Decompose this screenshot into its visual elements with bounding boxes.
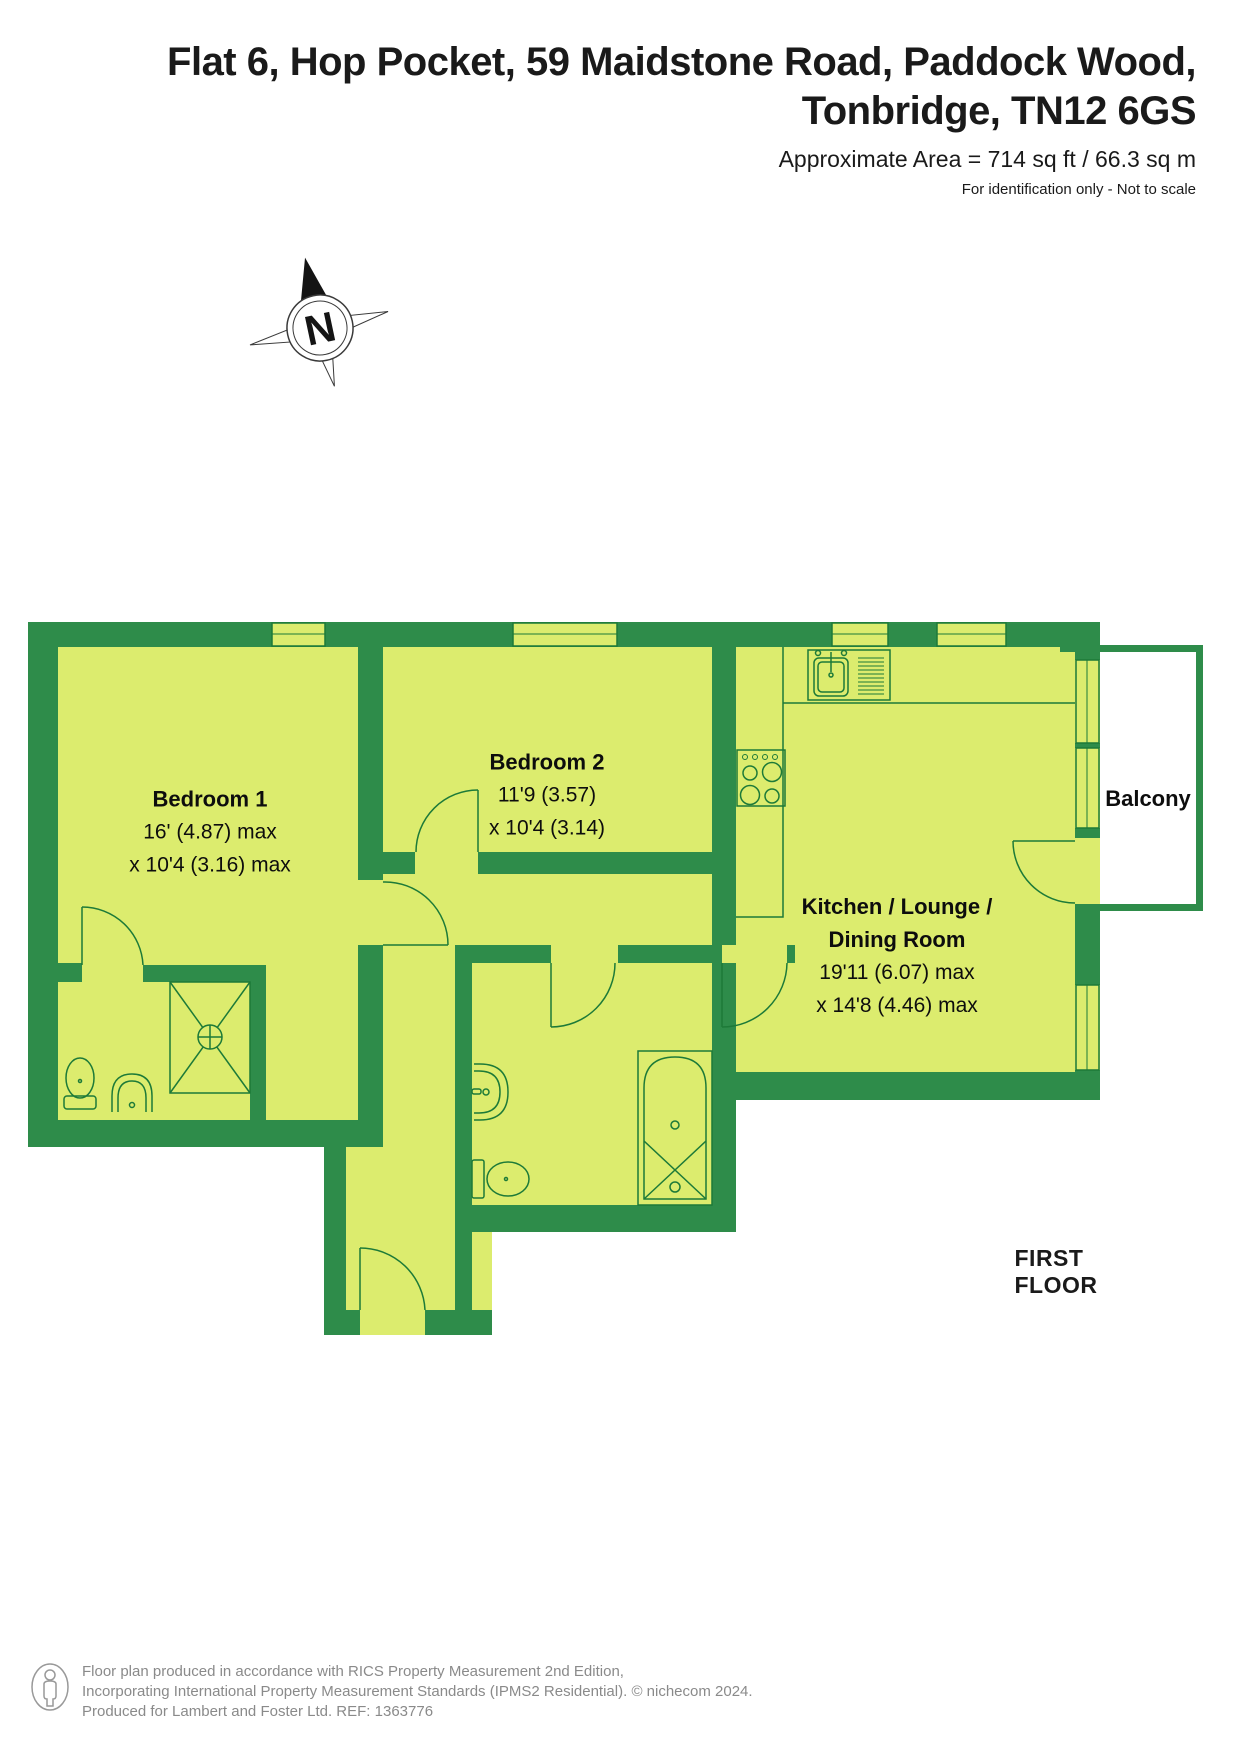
window-bedroom1 bbox=[272, 623, 325, 646]
balcony-floor bbox=[1100, 652, 1196, 904]
room-name: Bedroom 2 bbox=[489, 746, 605, 779]
window-kitchen-1 bbox=[832, 623, 888, 646]
room-name: Bedroom 1 bbox=[129, 783, 291, 816]
kitchen-lounge-label: Kitchen / Lounge / Dining Room 19'11 (6.… bbox=[802, 890, 993, 1022]
room-dim: 19'11 (6.07) max bbox=[802, 956, 993, 989]
window-right-lower bbox=[1076, 985, 1099, 1070]
footer-line-1: Floor plan produced in accordance with R… bbox=[82, 1662, 753, 1682]
scale-disclaimer: For identification only - Not to scale bbox=[167, 181, 1196, 198]
room-dim: x 14'8 (4.46) max bbox=[802, 989, 993, 1022]
person-icon bbox=[30, 1662, 72, 1714]
footer-line-2: Incorporating International Property Mea… bbox=[82, 1682, 753, 1702]
window-balcony-1 bbox=[1076, 660, 1099, 743]
bedroom1-floor bbox=[28, 622, 358, 1147]
floorplan-page: Flat 6, Hop Pocket, 59 Maidstone Road, P… bbox=[0, 0, 1241, 1755]
room-dim: 11'9 (3.57) bbox=[489, 779, 605, 812]
title-line-1: Flat 6, Hop Pocket, 59 Maidstone Road, P… bbox=[167, 38, 1196, 87]
room-name: Dining Room bbox=[802, 923, 993, 956]
room-dim: x 10'4 (3.14) bbox=[489, 812, 605, 845]
approximate-area: Approximate Area = 714 sq ft / 66.3 sq m bbox=[167, 146, 1196, 173]
floor-level-label: FIRST FLOOR bbox=[1015, 1245, 1166, 1299]
floorplan-drawing bbox=[28, 560, 1218, 1340]
window-balcony-2 bbox=[1076, 748, 1099, 828]
footer-line-3: Produced for Lambert and Foster Ltd. REF… bbox=[82, 1702, 753, 1722]
window-kitchen-2 bbox=[937, 623, 1006, 646]
header: Flat 6, Hop Pocket, 59 Maidstone Road, P… bbox=[167, 38, 1196, 198]
bedroom2-label: Bedroom 2 11'9 (3.57) x 10'4 (3.14) bbox=[489, 746, 605, 845]
room-name: Kitchen / Lounge / bbox=[802, 890, 993, 923]
balcony-label: Balcony bbox=[1105, 786, 1191, 812]
bedroom1-label: Bedroom 1 16' (4.87) max x 10'4 (3.16) m… bbox=[129, 783, 291, 882]
title-line-2: Tonbridge, TN12 6GS bbox=[167, 87, 1196, 136]
room-dim: 16' (4.87) max bbox=[129, 816, 291, 849]
page-title: Flat 6, Hop Pocket, 59 Maidstone Road, P… bbox=[167, 38, 1196, 136]
kitchen-floor bbox=[712, 622, 1100, 1100]
footer-text: Floor plan produced in accordance with R… bbox=[82, 1662, 753, 1722]
footer: Floor plan produced in accordance with R… bbox=[30, 1662, 753, 1722]
compass-north-icon: N bbox=[240, 248, 400, 408]
window-bedroom2 bbox=[513, 623, 617, 646]
room-dim: x 10'4 (3.16) max bbox=[129, 849, 291, 882]
balcony-door-opening bbox=[1075, 838, 1100, 904]
